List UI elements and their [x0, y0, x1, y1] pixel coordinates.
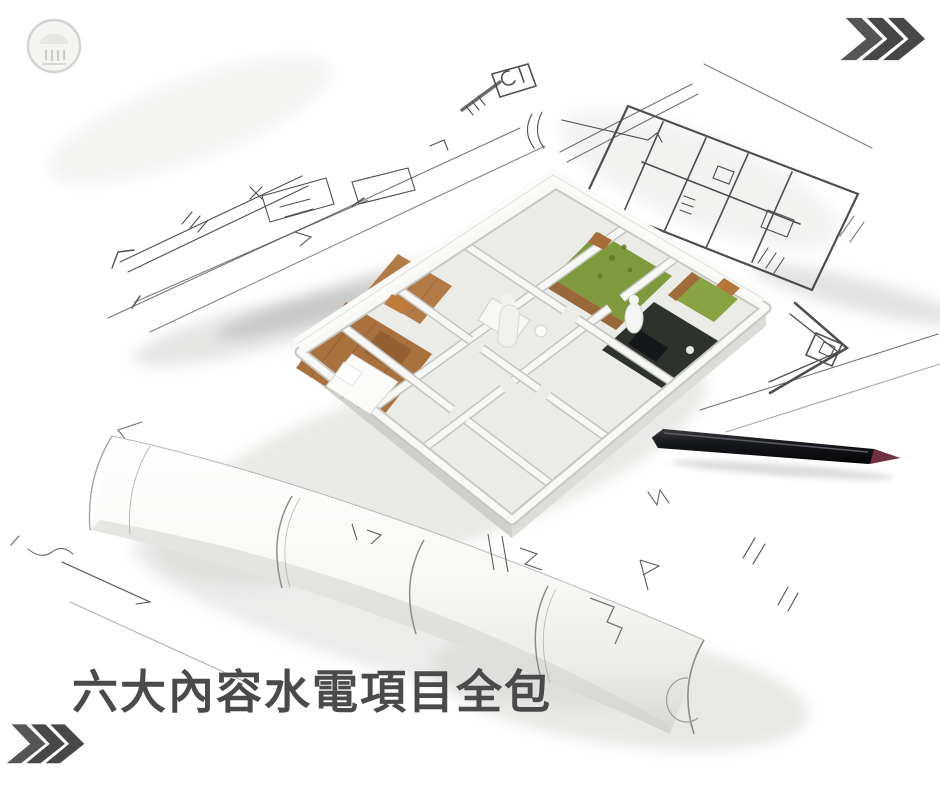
fast-forward-chevrons-icon — [840, 12, 932, 66]
fast-forward-chevrons-icon — [6, 718, 94, 770]
promo-slide: 六大內容水電項目全包 — [0, 0, 940, 788]
headline-text: 六大內容水電項目全包 — [72, 656, 552, 722]
circular-stamp-logo — [22, 14, 86, 80]
black-pen — [652, 429, 900, 484]
